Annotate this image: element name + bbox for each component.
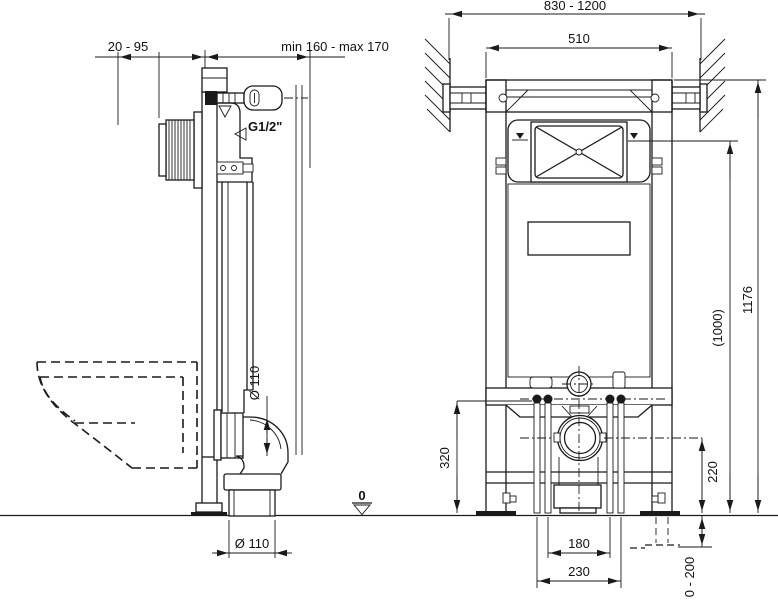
dim-depth-label: min 160 - max 170 <box>281 39 389 54</box>
dim-leg-adjust-range-label: 0 - 200 <box>682 557 697 597</box>
wc-bowl-outline <box>37 362 197 468</box>
rail-hole-left <box>499 94 507 102</box>
front-view: 830 - 1200 510 1176 (1000) 32 <box>425 0 766 597</box>
side-frame-foot <box>196 503 222 512</box>
foot-left <box>476 511 516 516</box>
side-view: 20 - 95 min 160 - max 170 <box>37 39 389 558</box>
dim-bolt-spacing-label: 180 <box>568 536 590 551</box>
support-arm-left <box>443 84 486 112</box>
support-arm-right <box>672 84 707 112</box>
filling-pipe <box>613 372 625 388</box>
mounting-bolt <box>606 395 615 404</box>
inlet-pin <box>205 91 217 105</box>
dim-bolt-height-label: 320 <box>437 447 452 469</box>
dim-wall-offset-label: 20 - 95 <box>108 39 148 54</box>
frame-column-right <box>652 80 672 513</box>
elbow-down-pipe <box>229 490 275 516</box>
installation-frame-drawing: 0 20 - 95 min 160 - max 170 <box>0 0 778 600</box>
rail-hole-right <box>651 94 659 102</box>
marker-triangle-down-icon <box>219 106 231 117</box>
datum-zero-label: 0 <box>358 488 365 503</box>
dim-flush-plate-height-label: (1000) <box>710 309 725 347</box>
foot-right <box>640 511 680 516</box>
plate-window <box>528 222 630 255</box>
mounting-bolt <box>617 395 626 404</box>
water-inlet-fitting: G1/2" <box>205 86 308 140</box>
water-inlet-label: G1/2" <box>248 119 282 134</box>
dim-total-height-label: 1176 <box>740 286 755 314</box>
datum-triangle-icon <box>354 505 370 515</box>
waste-socket <box>554 485 601 508</box>
dim-leg-spacing-label: 230 <box>568 564 590 579</box>
perforated-plate <box>508 184 650 377</box>
dim-outlet-center-height-label: 220 <box>705 461 720 483</box>
outlet-diameter-side-label: Ø 110 <box>247 366 262 400</box>
dim-width-adjustable-label: 830 - 1200 <box>544 0 606 13</box>
overflow-block <box>530 377 552 388</box>
outlet-elbow: Ø 110 Ø 110 <box>212 366 292 558</box>
leg-adjuster-right <box>658 493 665 503</box>
cistern-bracket <box>217 162 253 174</box>
frame-top-rail <box>486 80 672 112</box>
outlet-diameter-bottom-label: Ø 110 <box>235 536 269 551</box>
inlet-rod <box>217 93 244 103</box>
flush-sleeve <box>159 112 202 188</box>
leg-adjuster-left <box>503 493 510 503</box>
mounting-bolt <box>544 395 553 404</box>
frame-column-left <box>486 80 506 513</box>
flush-plate-opening <box>496 120 662 182</box>
elbow-socket <box>224 474 281 490</box>
mounting-bolt <box>533 395 542 404</box>
dim-frame-width-label: 510 <box>568 31 590 46</box>
